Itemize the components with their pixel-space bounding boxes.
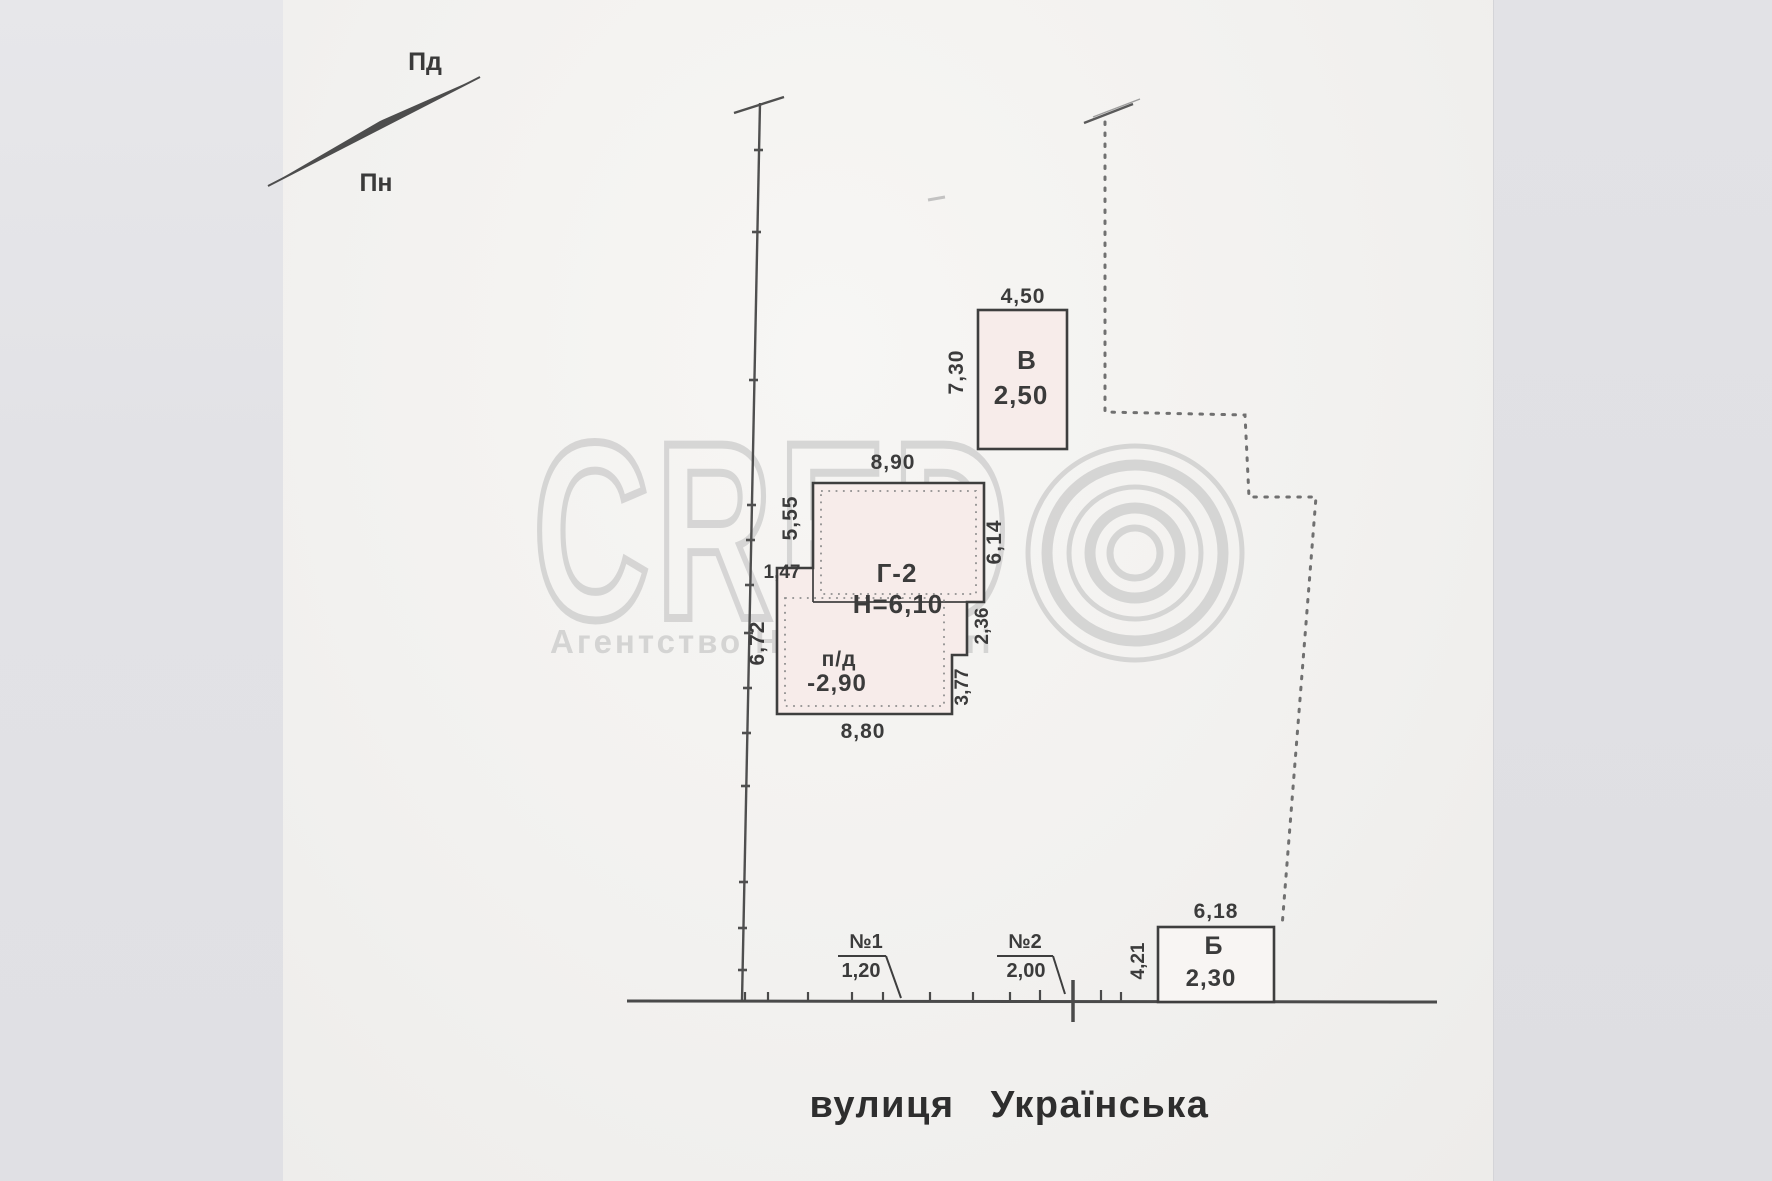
gate-2-width: 2,00 <box>1007 960 1046 982</box>
g2-basement-label: п/д <box>822 648 857 671</box>
building-v-dim-top: 4,50 <box>1001 285 1046 308</box>
gate-2-leader <box>1053 956 1065 994</box>
building-b: 6,18 4,21 Б 2,30 <box>1128 900 1274 1002</box>
o-ring-4 <box>1090 508 1180 598</box>
baseline <box>627 1001 1437 1002</box>
g2-dim-right: 6,14 <box>983 520 1006 565</box>
building-v-area: 2,50 <box>994 380 1049 410</box>
scanned-site-plan: CRED Агентство Нерухомості Пд Пн <box>0 0 1772 1181</box>
building-b-area: 2,30 <box>1186 965 1237 992</box>
o-ring-5 <box>1110 528 1160 578</box>
o-ring-1 <box>1028 446 1242 660</box>
compass-north-label: Пн <box>359 169 392 197</box>
building-v-label: В <box>1017 345 1037 375</box>
gate-2-annotation: №2 2,00 <box>997 931 1065 994</box>
o-ring-2 <box>1047 465 1223 641</box>
street-word: вулиця <box>809 1084 954 1126</box>
g2-dim-step-left: 1,47 <box>764 562 801 583</box>
g2-dim-bottom: 8,80 <box>841 720 886 743</box>
dotted-boundary-top-crossbar-2 <box>1093 99 1140 117</box>
gate-1-annotation: №1 1,20 <box>838 931 901 998</box>
compass-south-label: Пд <box>408 48 442 76</box>
building-b-dim-left: 4,21 <box>1128 942 1149 979</box>
dotted-boundary-line <box>1105 122 1316 927</box>
g2-height-note: Н=6,10 <box>853 589 944 619</box>
g2-basement-value: -2,90 <box>807 670 867 697</box>
g2-dim-lower-left: 6,72 <box>746 621 769 666</box>
g2-dim-right-step1: 2,36 <box>972 608 993 645</box>
street-baseline <box>627 980 1437 1022</box>
gate-1-leader <box>886 956 901 998</box>
scan-artifact-dash <box>928 197 945 200</box>
watermark-o-rings <box>1028 446 1242 660</box>
g2-label: Г-2 <box>877 558 918 588</box>
g2-dim-right-step2: 3,77 <box>952 669 973 706</box>
g2-dim-top: 8,90 <box>871 451 916 474</box>
dotted-boundary-top-crossbar <box>1084 104 1133 123</box>
gate-1-label: №1 <box>849 931 882 953</box>
building-b-label: Б <box>1205 932 1224 960</box>
site-plan-svg: CRED Агентство Нерухомості Пд Пн <box>0 0 1772 1181</box>
street-name: вулиця Українська <box>809 1084 1209 1126</box>
compass: Пд Пн <box>268 48 480 197</box>
gate-2-label: №2 <box>1008 931 1041 953</box>
g2-dim-upper-left: 5,55 <box>779 496 802 541</box>
building-v-dim-left: 7,30 <box>945 350 968 395</box>
street-title: Українська <box>991 1084 1210 1126</box>
building-b-dim-top: 6,18 <box>1194 900 1239 923</box>
gate-1-width: 1,20 <box>842 960 881 982</box>
